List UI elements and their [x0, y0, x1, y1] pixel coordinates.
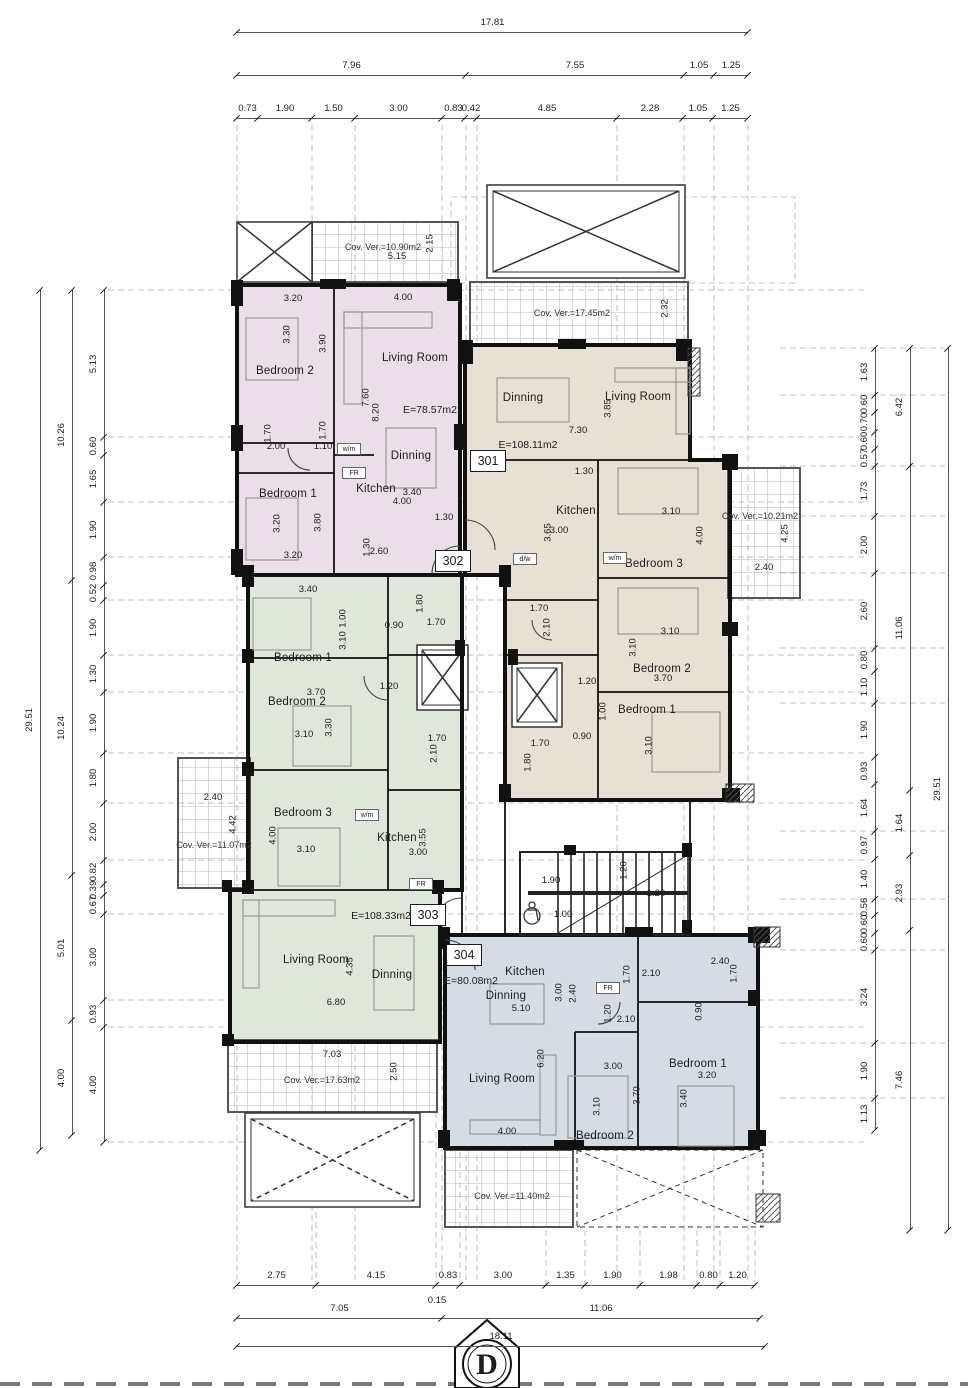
balcony-301-top: [470, 282, 688, 345]
dim-chain-line-top-overall: [237, 32, 748, 33]
balcony-304-bottom: [445, 1150, 573, 1227]
void-top-center: [487, 185, 685, 278]
staircase: [520, 852, 690, 935]
dim-chain-line-bottom-mid: [237, 1318, 760, 1319]
dim-chain-line-bottom-overall: [237, 1346, 765, 1347]
dim-chain-line-top-mid: [237, 75, 748, 76]
void-bottom-right: [577, 1150, 763, 1227]
dim-chain-line-top-detail: [237, 118, 748, 119]
floor-plan-drawing: [0, 0, 968, 1388]
elevator-shaft-2: [512, 663, 562, 727]
dim-chain-line-left-detail: [104, 290, 105, 1142]
dim-chain-line-left-overall: [40, 290, 41, 1150]
void-bottom-left: [245, 1113, 420, 1207]
floor-plan-canvas: D 17.817.967.551.051.250.731.901.503.000…: [0, 0, 968, 1388]
balcony-303-left: [178, 758, 250, 888]
balcony-302-top: [312, 222, 458, 282]
section-marker-d: [455, 1320, 519, 1388]
apt-304-region: [445, 935, 758, 1148]
wheelchair-icon: [524, 902, 540, 924]
dim-chain-line-right-overall: [948, 348, 949, 1230]
dim-chain-line-left-mid: [72, 290, 73, 1135]
balcony-303-bottom: [228, 1040, 437, 1112]
balcony-301-right: [728, 468, 800, 598]
void-top-left: [237, 222, 312, 282]
